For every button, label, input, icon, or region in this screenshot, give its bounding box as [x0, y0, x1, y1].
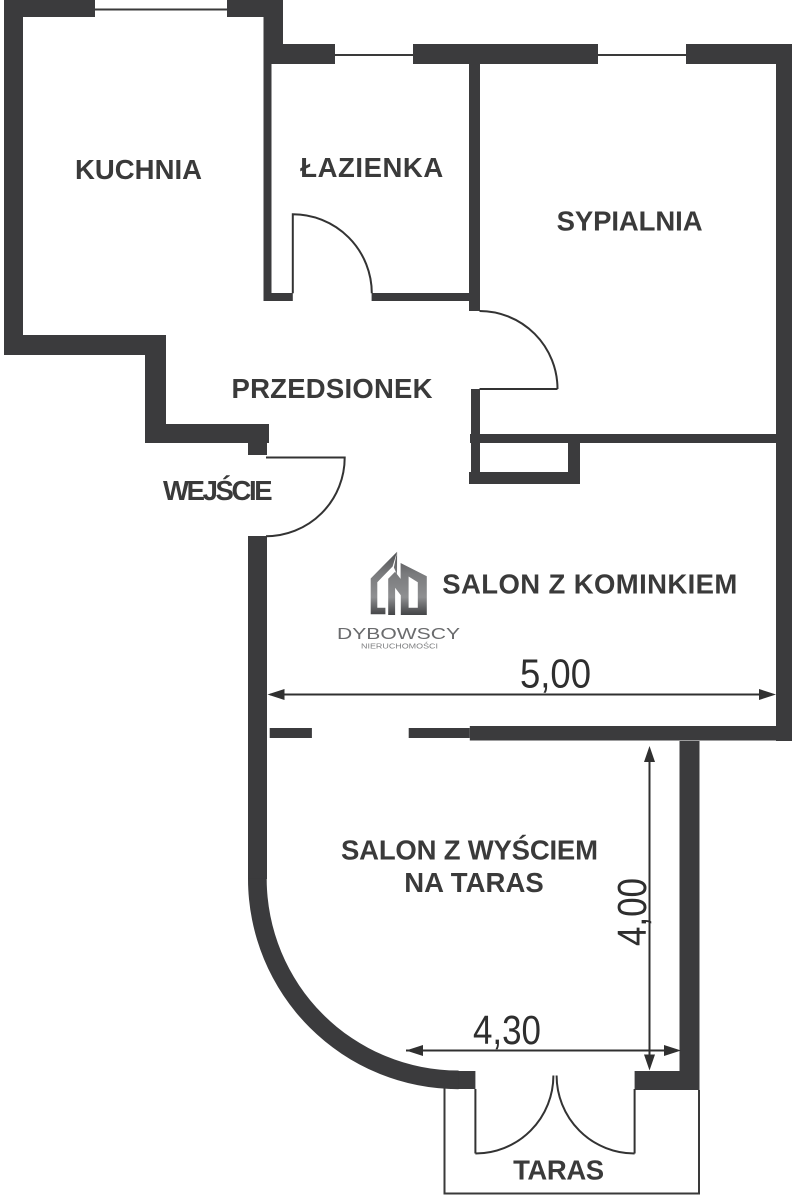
svg-text:DYBOWSCY: DYBOWSCY — [337, 626, 460, 643]
svg-text:5,00: 5,00 — [520, 650, 591, 696]
svg-text:SALON Z WYŚCIEM: SALON Z WYŚCIEM — [341, 834, 598, 865]
svg-text:NIERUCHOMOŚCI: NIERUCHOMOŚCI — [361, 642, 438, 651]
svg-text:PRZEDSIONEK: PRZEDSIONEK — [232, 373, 433, 404]
svg-text:TARAS: TARAS — [513, 1155, 604, 1186]
svg-text:SYPIALNIA: SYPIALNIA — [557, 206, 703, 237]
svg-text:ŁAZIENKA: ŁAZIENKA — [300, 152, 443, 183]
svg-text:4,00: 4,00 — [609, 878, 655, 946]
svg-text:4,30: 4,30 — [473, 1007, 541, 1053]
svg-text:KUCHNIA: KUCHNIA — [75, 154, 202, 185]
svg-text:NA TARAS: NA TARAS — [404, 867, 544, 898]
svg-text:WEJŚCIE: WEJŚCIE — [163, 475, 272, 506]
svg-text:SALON Z KOMINKIEM: SALON Z KOMINKIEM — [442, 568, 737, 599]
